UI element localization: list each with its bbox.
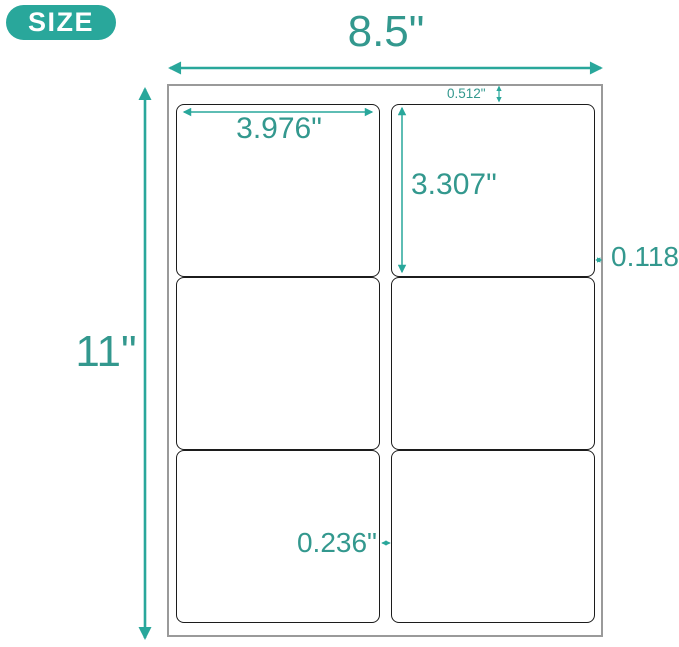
side-margin-value: 0.118" [611, 243, 679, 271]
label-cell [391, 277, 595, 450]
size-badge: SIZE [6, 5, 116, 40]
label-cell [176, 277, 380, 450]
labels-grid [176, 104, 595, 623]
top-margin-value: 0.512" [447, 87, 486, 101]
column-gap-value: 0.236" [297, 529, 377, 557]
sheet-height-value: 11" [75, 330, 136, 374]
sheet-width-value: 8.5" [348, 10, 425, 54]
size-diagram-canvas: SIZE 8.5" 11" 3.976" 3.307" 0.512" 0.118… [0, 0, 679, 647]
label-cell [391, 450, 595, 623]
label-height-value: 3.307" [411, 170, 497, 200]
label-width-value: 3.976" [236, 114, 322, 144]
